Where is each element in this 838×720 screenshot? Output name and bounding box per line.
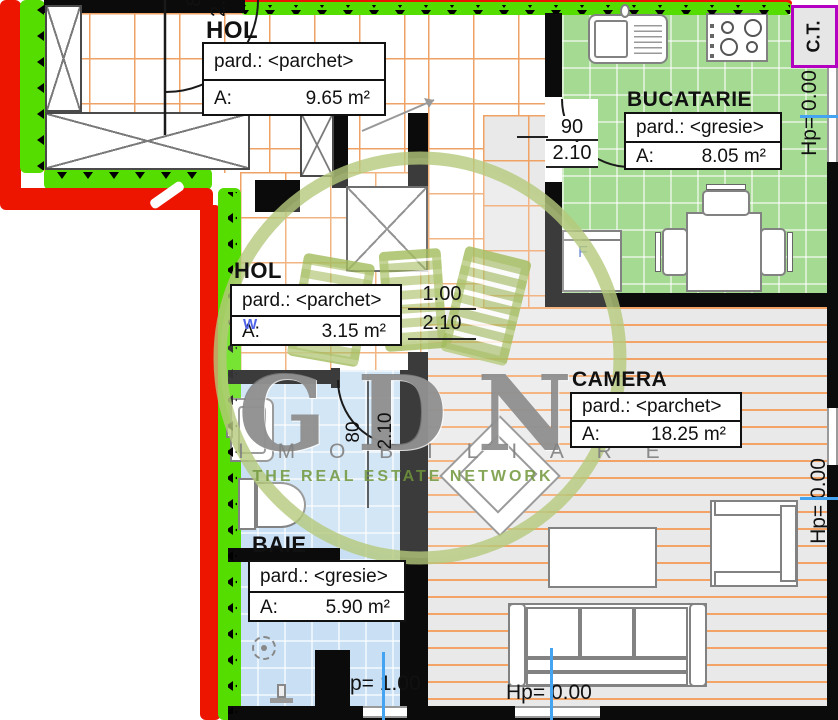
dim-kitchen-underline-1 xyxy=(546,139,598,141)
kitchen-sink-tap xyxy=(620,4,630,18)
sofa-armrest-right xyxy=(689,603,707,687)
level-line-camera xyxy=(550,648,553,720)
exterior-border-green-corner xyxy=(44,168,212,190)
dim-kitchen-door-height: 2.10 xyxy=(546,142,598,165)
bucatarie-area-label: A: xyxy=(636,146,654,168)
hol-top-area: A: 9.65 m² xyxy=(204,81,384,116)
room-title-hol-mid: HOL xyxy=(234,258,282,284)
exterior-border-red-left xyxy=(0,0,21,206)
hol-top-pard: pard.: <parchet> xyxy=(204,44,384,81)
ct-label: C.T. xyxy=(804,12,825,62)
watermark-tagline: THE REAL ESTATE NETWORK xyxy=(250,468,556,486)
stove-knobs xyxy=(710,18,714,58)
chair-top-back xyxy=(706,184,746,190)
baie-area-label: A: xyxy=(260,597,278,619)
exterior-border-red-corner xyxy=(0,188,213,210)
hp-marker-bath: p= 1.00 xyxy=(350,672,421,696)
fridge-label: F xyxy=(578,244,588,262)
wardrobe-tall-topleft xyxy=(45,5,82,112)
hol-mid-area: A: 3.15 m² xyxy=(232,317,400,346)
level-line-mid-right xyxy=(800,497,838,500)
bucatarie-area-value: 8.05 m² xyxy=(702,146,766,168)
camera-area: A: 18.25 m² xyxy=(572,422,740,448)
hp-marker-top-right: Hp= 0.00 xyxy=(798,67,822,159)
armchair-right-back xyxy=(780,505,797,582)
camera-pard: pard.: <parchet> xyxy=(572,394,740,422)
wall-right xyxy=(827,68,838,720)
chair-right-back xyxy=(787,232,793,272)
room-label-baie: pard.: <gresie> A: 5.90 m² xyxy=(248,560,406,622)
room-label-hol-mid: pard.: <parchet> A: 3.15 m² xyxy=(230,284,402,346)
hol-mid-area-value: 3.15 m² xyxy=(322,321,386,343)
hol-top-area-value: 9.65 m² xyxy=(306,88,370,110)
dim-hall-door-height: 2.10 xyxy=(410,312,474,335)
kitchen-sink-basin xyxy=(594,20,628,58)
kitchen-chair-left xyxy=(662,228,688,276)
level-line-bath xyxy=(382,652,385,720)
sofa-cushion-1 xyxy=(526,607,580,658)
plumbing-w-symbol: W xyxy=(243,316,257,333)
floor-drain-dot xyxy=(261,645,267,651)
dim-entry-door-height: 2.10 xyxy=(208,0,231,24)
bath-valve-base xyxy=(270,698,293,703)
dim-hall-underline-2 xyxy=(408,338,476,340)
watermark-company: I M O B I L I A R E xyxy=(238,440,568,464)
kitchen-table xyxy=(686,212,762,292)
baie-pard: pard.: <gresie> xyxy=(250,562,404,593)
room-label-bucatarie: pard.: <gresie> A: 8.05 m² xyxy=(624,112,782,170)
camera-area-label: A: xyxy=(582,424,600,446)
hp-marker-bottom: Hp= 0.00 xyxy=(506,681,592,705)
chair-left-back xyxy=(655,232,661,272)
wall-stub-holmid xyxy=(255,180,300,212)
hol-top-area-label: A: xyxy=(214,88,232,110)
dim-entry-door-width: 80 xyxy=(184,0,207,16)
room-title-baie: BAIE xyxy=(252,532,307,558)
wall-kitchen-left-lower xyxy=(545,182,562,307)
dim-kitchen-underline-2 xyxy=(546,166,598,168)
wardrobe-narrow-mid xyxy=(300,113,334,177)
toilet-bowl xyxy=(256,482,306,528)
bucatarie-area: A: 8.05 m² xyxy=(626,143,780,170)
room-label-hol-top: pard.: <parchet> A: 9.65 m² xyxy=(202,42,386,116)
exterior-border-green-left xyxy=(20,0,45,173)
stove-burner-3 xyxy=(720,38,738,56)
coffee-table xyxy=(548,527,657,588)
wardrobe-wide-left xyxy=(45,112,250,170)
window-bottom-bath xyxy=(363,706,407,718)
dim-hall-underline-1 xyxy=(408,308,476,310)
dim-bath-door-width: 80 xyxy=(343,412,365,452)
stove-burner-2 xyxy=(744,19,762,37)
stove-burner-1 xyxy=(721,21,734,34)
dim-hall-door-width: 1.00 xyxy=(410,283,474,306)
sofa-armrest-left xyxy=(508,603,526,687)
dim-kitchen-door-width: 90 xyxy=(548,116,596,139)
stove-burner-4 xyxy=(746,41,758,53)
wall-bath-pillar xyxy=(315,650,350,706)
window-bottom-camera xyxy=(515,706,600,718)
kitchen-sink-drainboard xyxy=(634,22,662,58)
room-title-bucatarie: BUCATARIE xyxy=(627,88,752,112)
baie-area: A: 5.90 m² xyxy=(250,593,404,622)
kitchen-chair-right xyxy=(760,228,786,276)
hol-mid-pard: pard.: <parchet> xyxy=(232,286,400,317)
room-label-camera: pard.: <parchet> A: 18.25 m² xyxy=(570,392,742,448)
wall-kitchen-left-upper xyxy=(545,13,562,97)
kitchen-chair-top xyxy=(702,190,750,216)
room-title-camera: CAMERA xyxy=(572,368,667,392)
level-line-top-right xyxy=(800,115,838,118)
sofa-cushion-3 xyxy=(634,607,688,658)
hp-marker-mid-right: Hp= 0.00 xyxy=(807,455,831,547)
sofa-cushion-2 xyxy=(580,607,634,658)
bucatarie-pard: pard.: <gresie> xyxy=(626,114,780,143)
fridge-door-line xyxy=(562,239,622,241)
floor-plan: F xyxy=(0,0,838,720)
bath-sink-tap xyxy=(226,424,233,438)
wall-wardrobe-divider xyxy=(332,113,348,188)
dim-bath-door-height: 2.10 xyxy=(375,405,397,457)
camera-area-value: 18.25 m² xyxy=(651,424,726,446)
bath-valve xyxy=(277,684,286,698)
wall-kitchen-bottom xyxy=(545,293,827,307)
baie-area-value: 5.90 m² xyxy=(326,597,390,619)
